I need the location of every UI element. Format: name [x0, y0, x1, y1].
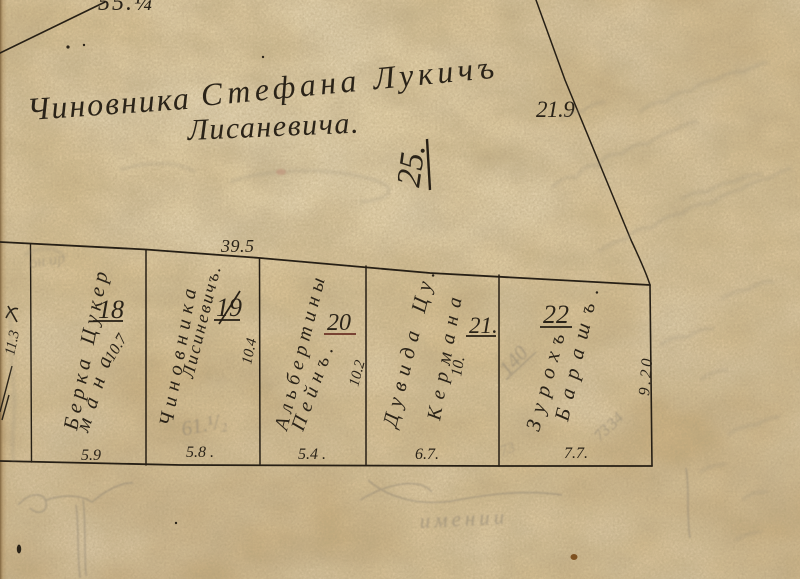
- svg-text:имении: имении: [419, 504, 509, 533]
- svg-text:22: 22: [543, 300, 569, 329]
- svg-text:7.7.: 7.7.: [564, 445, 588, 462]
- svg-text:9.20: 9.20: [636, 355, 656, 396]
- svg-text:10.: 10.: [448, 355, 468, 378]
- svg-text:5.9: 5.9: [81, 447, 101, 464]
- svg-text:55.¼: 55.¼: [98, 0, 154, 16]
- svg-text:5.4 .: 5.4 .: [298, 446, 326, 463]
- svg-text:21.9: 21.9: [536, 97, 575, 122]
- svg-text:6.7.: 6.7.: [415, 446, 439, 463]
- svg-text:18: 18: [98, 295, 124, 324]
- svg-text:39.5: 39.5: [220, 236, 255, 256]
- svg-text:20: 20: [327, 310, 351, 336]
- svg-text:5.8 .: 5.8 .: [186, 444, 214, 461]
- svg-text:21.: 21.: [469, 313, 498, 338]
